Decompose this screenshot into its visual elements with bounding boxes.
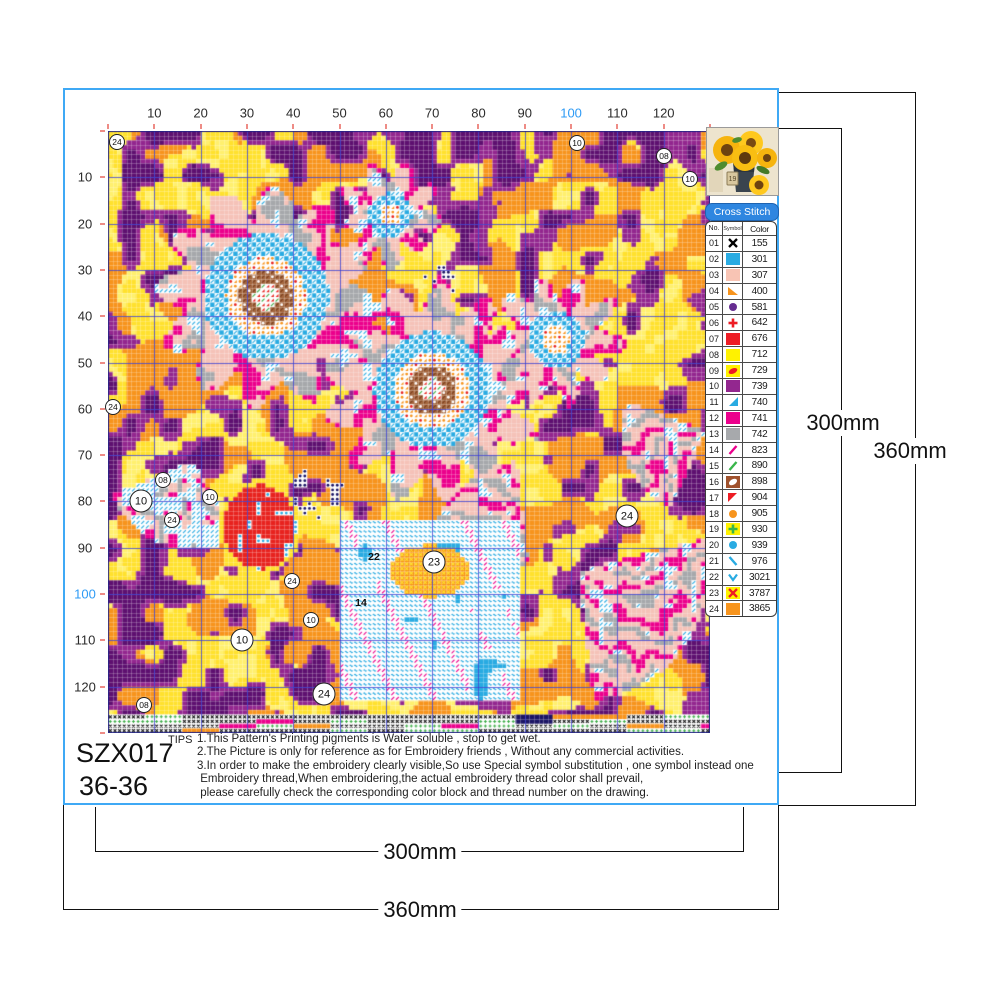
legend-no: 22 (706, 570, 723, 585)
dim-right-inner-bottom (779, 772, 842, 773)
symbol-swatch (726, 555, 740, 567)
legend-no: 08 (706, 347, 723, 362)
dim-right-inner-label: 300mm (801, 410, 884, 436)
stitch-color-marker: 10 (303, 612, 319, 628)
tips-line: please carefully check the corresponding… (197, 787, 754, 800)
symbol-swatch (726, 253, 740, 265)
legend-row: 19930 (706, 521, 776, 537)
ruler-left-label: 30 (78, 262, 92, 277)
legend-col-symbol: Symbol (723, 222, 743, 235)
legend-color-code: 3865 (743, 601, 776, 616)
legend-no: 19 (706, 522, 723, 537)
legend-color-code: 890 (743, 458, 776, 473)
symbol-swatch (726, 333, 740, 345)
legend-col-color: Color (743, 222, 776, 235)
symbol-swatch (726, 396, 740, 408)
ruler-left-label: 20 (78, 216, 92, 231)
ruler-top-label: 80 (471, 106, 485, 121)
legend-symbol (723, 427, 743, 442)
legend-row: 09729 (706, 362, 776, 378)
ruler-tick (100, 639, 105, 641)
ruler-tick (100, 593, 105, 595)
legend-symbol (723, 586, 743, 601)
legend-symbol (723, 331, 743, 346)
ruler-tick (100, 732, 105, 734)
ruler-left-label: 40 (78, 309, 92, 324)
legend-color-code: 155 (743, 236, 776, 251)
ruler-tick (616, 124, 618, 129)
legend-color-code: 3787 (743, 586, 776, 601)
ruler-top-label: 30 (240, 106, 254, 121)
legend-color-code: 740 (743, 395, 776, 410)
ruler-tick (100, 500, 105, 502)
legend-color-code: 676 (743, 331, 776, 346)
stitch-color-marker: 22 (368, 551, 380, 563)
dim-bottom-inner-left (95, 807, 96, 852)
ruler-tick (339, 124, 341, 129)
legend-no: 13 (706, 427, 723, 442)
stitch-color-marker: 10 (569, 135, 585, 151)
stitch-color-marker: 24 (105, 399, 121, 415)
stitch-color-marker: 24 (616, 505, 639, 528)
legend-symbol (723, 601, 743, 616)
ruler-left-label: 10 (78, 170, 92, 185)
legend-table: No.SymbolColor01155023010330704400055810… (705, 221, 777, 617)
legend-no: 15 (706, 458, 723, 473)
ruler-top-label: 60 (379, 106, 393, 121)
product-sheet: 102030405060708090100110120 102030405060… (0, 0, 1001, 1001)
vase-tag-text: 19 (729, 176, 737, 183)
legend-row: 21976 (706, 553, 776, 569)
dim-right-outer-bottom (779, 805, 916, 806)
legend-symbol (723, 395, 743, 410)
stitch-color-marker: 24 (109, 134, 125, 150)
legend-no: 14 (706, 443, 723, 458)
legend-row: 12741 (706, 410, 776, 426)
legend-no: 20 (706, 538, 723, 553)
legend-symbol (723, 252, 743, 267)
stitch-color-marker: 08 (136, 697, 152, 713)
ruler-tick (385, 124, 387, 129)
stitch-color-marker: 24 (313, 683, 336, 706)
ruler-tick (100, 547, 105, 549)
legend-row: 17904 (706, 489, 776, 505)
ruler-tick (200, 124, 202, 129)
dim-right-outer-top (779, 92, 916, 93)
legend-color-code: 939 (743, 538, 776, 553)
legend-no: 07 (706, 331, 723, 346)
legend-row: 07676 (706, 330, 776, 346)
legend-symbol (723, 236, 743, 251)
dim-right-inner-line (841, 128, 842, 772)
stitch-color-marker: 10 (130, 490, 153, 513)
stitch-color-marker: 10 (231, 629, 254, 652)
legend-color-code: 741 (743, 411, 776, 426)
legend-row: 18905 (706, 505, 776, 521)
symbol-swatch (726, 301, 740, 313)
legend-title: Cross Stitch (705, 203, 779, 221)
ruler-tick (100, 454, 105, 456)
ruler-top-label: 20 (193, 106, 207, 121)
stitch-color-marker: 24 (164, 512, 180, 528)
legend-no: 01 (706, 236, 723, 251)
stitch-color-marker: 08 (656, 148, 672, 164)
legend-color-code: 712 (743, 347, 776, 362)
tips-label: TIPS (168, 734, 192, 746)
stitch-color-marker: 10 (202, 489, 218, 505)
ruler-tick (477, 124, 479, 129)
pattern-canvas (108, 131, 710, 733)
legend-color-code: 976 (743, 554, 776, 569)
stitch-color-marker: 14 (355, 597, 367, 609)
ruler-left-label: 100 (74, 587, 96, 602)
ruler-left-label: 120 (74, 679, 96, 694)
legend-no: 12 (706, 411, 723, 426)
tips-line: 1.This Pattern's Printing pigments is Wa… (197, 733, 754, 746)
legend-col-no: No. (706, 222, 723, 235)
ruler-tick (100, 130, 105, 132)
legend-color-code: 642 (743, 315, 776, 330)
ruler-left-label: 60 (78, 401, 92, 416)
tips-line: Embroidery thread,When embroidering,the … (197, 773, 754, 786)
legend-symbol (723, 522, 743, 537)
product-code: SZX017 (76, 738, 174, 769)
ruler-tick (153, 124, 155, 129)
legend-no: 24 (706, 601, 723, 616)
symbol-swatch (726, 428, 740, 440)
legend-no: 11 (706, 395, 723, 410)
legend-row: 243865 (706, 600, 776, 616)
stitch-pattern: 241008102410082410102410240824232214 (108, 131, 710, 733)
dim-right-inner-top (779, 128, 842, 129)
dim-right-outer-label: 360mm (868, 438, 951, 464)
legend-color-code: 307 (743, 268, 776, 283)
legend-no: 17 (706, 490, 723, 505)
legend-symbol (723, 284, 743, 299)
legend-row: 20939 (706, 537, 776, 553)
stitch-color-marker: 08 (155, 472, 171, 488)
ruler-left-label: 70 (78, 448, 92, 463)
legend-color-code: 823 (743, 443, 776, 458)
legend-no: 02 (706, 252, 723, 267)
legend-color-code: 400 (743, 284, 776, 299)
legend-color-code: 930 (743, 522, 776, 537)
legend-color-code: 3021 (743, 570, 776, 585)
ruler-left-label: 50 (78, 355, 92, 370)
legend-symbol (723, 458, 743, 473)
legend-row: 14823 (706, 442, 776, 458)
symbol-swatch (726, 365, 740, 377)
ruler-top-label: 110 (607, 106, 628, 121)
legend-no: 04 (706, 284, 723, 299)
legend-no: 05 (706, 300, 723, 315)
legend-row: 06642 (706, 314, 776, 330)
ruler-tick (570, 124, 572, 129)
dim-bottom-inner-label: 300mm (378, 839, 461, 865)
legend-color-code: 905 (743, 506, 776, 521)
symbol-swatch (726, 317, 740, 329)
tips-line: 2.The Picture is only for reference as f… (197, 746, 754, 759)
legend-color-code: 729 (743, 363, 776, 378)
ruler-top-label: 40 (286, 106, 300, 121)
stitch-color-marker: 24 (284, 573, 300, 589)
product-thumbnail: 19 (706, 127, 779, 196)
legend-color-code: 739 (743, 379, 776, 394)
legend-row: 02301 (706, 251, 776, 267)
legend-symbol (723, 570, 743, 585)
symbol-swatch (726, 492, 740, 504)
symbol-swatch (726, 269, 740, 281)
legend-row: 05581 (706, 299, 776, 315)
ruler-top-label: 70 (425, 106, 439, 121)
legend-row: 08712 (706, 346, 776, 362)
stitch-color-marker: 23 (423, 551, 446, 574)
legend-symbol (723, 411, 743, 426)
legend-symbol (723, 506, 743, 521)
legend-row: 04400 (706, 283, 776, 299)
ruler-tick (663, 124, 665, 129)
symbol-swatch (726, 523, 740, 535)
ruler-top-label: 10 (147, 106, 161, 121)
ruler-left-label: 90 (78, 540, 92, 555)
legend-symbol (723, 315, 743, 330)
symbol-swatch (726, 380, 740, 392)
ruler-tick (100, 269, 105, 271)
legend-symbol (723, 443, 743, 458)
ruler-tick (246, 124, 248, 129)
legend-symbol (723, 474, 743, 489)
ruler-top-label: 50 (332, 106, 346, 121)
tips-line: 3.In order to make the embroidery clearl… (197, 760, 754, 773)
symbol-swatch (726, 237, 740, 249)
symbol-swatch (726, 460, 740, 472)
legend-row: 03307 (706, 267, 776, 283)
ruler-tick (100, 315, 105, 317)
symbol-swatch (726, 476, 740, 488)
legend-symbol (723, 300, 743, 315)
legend-row: 15890 (706, 457, 776, 473)
ruler-tick (292, 124, 294, 129)
dim-bottom-outer-right (778, 805, 779, 910)
ruler-tick (100, 223, 105, 225)
symbol-swatch (726, 285, 740, 297)
symbol-swatch (726, 603, 740, 615)
legend-no: 16 (706, 474, 723, 489)
tips-lines: 1.This Pattern's Printing pigments is Wa… (197, 733, 754, 800)
size-code: 36-36 (79, 771, 148, 802)
ruler-top-label: 90 (518, 106, 532, 121)
legend-title-text: Cross Stitch (714, 206, 771, 218)
legend-no: 03 (706, 268, 723, 283)
legend-row: 223021 (706, 569, 776, 585)
legend-color-code: 301 (743, 252, 776, 267)
dim-bottom-outer-label: 360mm (378, 897, 461, 923)
symbol-swatch (726, 571, 740, 583)
legend-header-row: No.SymbolColor (706, 222, 776, 235)
legend-color-code: 581 (743, 300, 776, 315)
symbol-swatch (726, 349, 740, 361)
legend-no: 21 (706, 554, 723, 569)
symbol-swatch (726, 539, 740, 551)
legend-no: 23 (706, 586, 723, 601)
symbol-swatch (726, 444, 740, 456)
legend-symbol (723, 268, 743, 283)
ruler-left-label: 110 (75, 633, 96, 648)
stitch-color-marker: 10 (682, 171, 698, 187)
legend-symbol (723, 379, 743, 394)
ruler-tick (524, 124, 526, 129)
legend-color-code: 898 (743, 474, 776, 489)
legend-row: 16898 (706, 473, 776, 489)
symbol-swatch (726, 508, 740, 520)
dim-bottom-outer-left (63, 805, 64, 910)
ruler-tick (100, 362, 105, 364)
ruler-tick (100, 686, 105, 688)
legend-symbol (723, 538, 743, 553)
legend-row: 11740 (706, 394, 776, 410)
ruler-top-label: 120 (653, 106, 675, 121)
legend-symbol (723, 347, 743, 362)
legend-symbol (723, 363, 743, 378)
symbol-swatch (726, 412, 740, 424)
legend-color-code: 904 (743, 490, 776, 505)
symbol-swatch (726, 587, 740, 599)
dim-bottom-inner-right (743, 807, 744, 852)
ruler-tick (431, 124, 433, 129)
legend-no: 18 (706, 506, 723, 521)
legend-no: 10 (706, 379, 723, 394)
legend-row: 233787 (706, 585, 776, 601)
legend-row: 01155 (706, 235, 776, 251)
legend-no: 06 (706, 315, 723, 330)
legend-no: 09 (706, 363, 723, 378)
legend-symbol (723, 490, 743, 505)
ruler-tick (107, 124, 109, 129)
ruler-left-label: 80 (78, 494, 92, 509)
legend-color-code: 742 (743, 427, 776, 442)
legend-symbol (723, 554, 743, 569)
legend-row: 10739 (706, 378, 776, 394)
ruler-tick (100, 176, 105, 178)
legend-row: 13742 (706, 426, 776, 442)
ruler-top-label: 100 (560, 106, 582, 121)
